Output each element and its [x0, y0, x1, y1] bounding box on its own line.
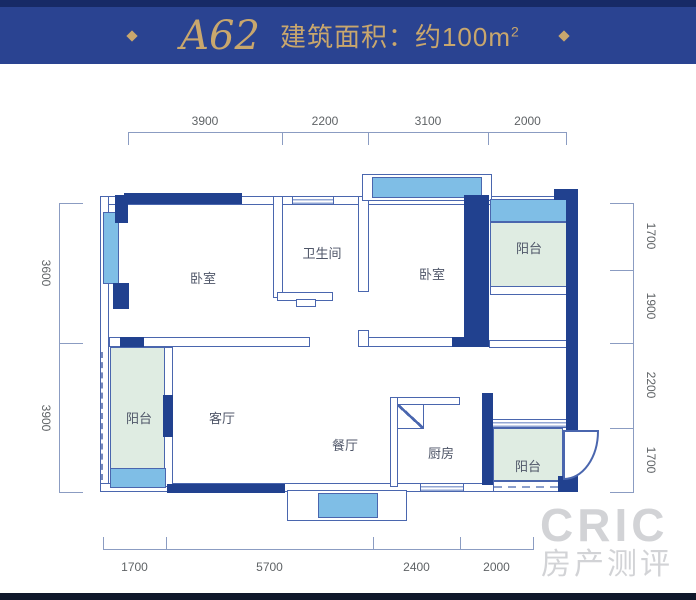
dim-tick	[103, 537, 104, 550]
area-label-text: 建筑面积：约100m	[280, 22, 511, 52]
dim-tick	[488, 132, 489, 145]
watermark-logo: CRIC	[540, 502, 668, 548]
dim-tick	[610, 428, 634, 429]
diamond-icon-left	[127, 30, 138, 41]
wall-bedroom2-left-lower	[358, 330, 369, 347]
top-border-strip	[0, 0, 696, 7]
dim-label-top-2: 2200	[282, 114, 368, 128]
dim-tick	[610, 492, 634, 493]
wall-middle-far-right	[489, 340, 568, 348]
window-kitchen-bottom	[420, 483, 464, 492]
dim-label-right-1: 1700	[643, 206, 659, 266]
bottom-border-strip	[0, 593, 696, 600]
dim-tick	[373, 537, 374, 550]
dim-tick	[610, 343, 634, 344]
dim-tick	[166, 537, 167, 550]
dim-tick	[533, 537, 534, 550]
dim-tick	[610, 203, 634, 204]
dim-label-top-3: 3100	[368, 114, 488, 128]
dim-label-bottom-4: 2000	[460, 560, 533, 574]
wall-segment	[120, 337, 144, 347]
dim-line-top	[128, 132, 567, 133]
watermark-text: 房产测评	[541, 548, 673, 581]
room-label-bedroom-right: 卧室	[400, 264, 464, 283]
wall-segment	[452, 337, 489, 347]
dim-tick	[282, 132, 283, 145]
floorplan-page: A62 建筑面积：约100m2 卧室	[0, 0, 696, 600]
room-label-dining: 餐厅	[313, 435, 377, 454]
entry-door-arc	[560, 427, 602, 483]
wall-segment	[124, 193, 242, 204]
wall-kitchen-right	[482, 393, 493, 485]
dim-label-top-1: 3900	[128, 114, 282, 128]
dim-label-right-4: 1700	[643, 430, 659, 490]
wall-bedroom2-left-upper	[358, 196, 369, 292]
wall-bedroom2-right	[464, 195, 489, 343]
dim-label-right-2: 1900	[643, 276, 659, 336]
dim-tick	[566, 132, 567, 145]
wall-segment	[113, 283, 129, 309]
dim-line-right	[633, 203, 634, 493]
wall-bedroom-bath-divider	[273, 196, 283, 298]
dim-label-bottom-1: 1700	[103, 560, 166, 574]
unit-name: A62	[180, 16, 260, 56]
wall-bath-notch	[296, 299, 316, 307]
dim-label-bottom-2: 5700	[166, 560, 373, 574]
window-balcony-left	[110, 468, 166, 488]
dim-tick	[128, 132, 129, 145]
dim-label-right-3: 2200	[643, 355, 659, 415]
room-label-bedroom-left: 卧室	[171, 268, 235, 287]
room-label-balcony-left: 阳台	[107, 408, 171, 427]
wall-right	[566, 189, 578, 433]
area-label: 建筑面积：约100m2	[280, 17, 520, 54]
room-label-living: 客厅	[190, 408, 254, 427]
dim-label-bottom-3: 2400	[373, 560, 460, 574]
window-living-bay	[318, 493, 378, 518]
dim-label-top-4: 2000	[488, 114, 567, 128]
dim-line-bottom	[103, 549, 533, 550]
room-label-balcony-br: 阳台	[496, 456, 560, 475]
dim-label-left-2: 3900	[38, 388, 54, 448]
dim-label-left-1: 3600	[38, 243, 54, 303]
railing-balcony-br	[493, 481, 563, 492]
wall-segment	[115, 195, 128, 223]
room-label-bathroom: 卫生间	[290, 243, 354, 262]
window-balcony-br-top	[490, 419, 568, 428]
window-balcony-tr	[490, 199, 567, 222]
dim-tick	[610, 270, 634, 271]
dim-tick	[59, 203, 83, 204]
diamond-icon-right	[558, 30, 569, 41]
window-bath-top	[292, 196, 334, 205]
kitchen-flue	[397, 404, 424, 429]
room-label-kitchen: 厨房	[409, 443, 473, 462]
dim-line-left	[59, 203, 60, 493]
dim-tick	[368, 132, 369, 145]
area-label-sup: 2	[511, 23, 520, 39]
room-label-balcony-tr: 阳台	[497, 238, 561, 257]
dim-tick	[59, 343, 83, 344]
dim-tick	[460, 537, 461, 550]
wall-segment	[167, 484, 285, 493]
header-banner: A62 建筑面积：约100m2	[0, 7, 696, 64]
dim-tick	[59, 492, 83, 493]
wall-balcony-tr-bottom	[490, 286, 568, 295]
